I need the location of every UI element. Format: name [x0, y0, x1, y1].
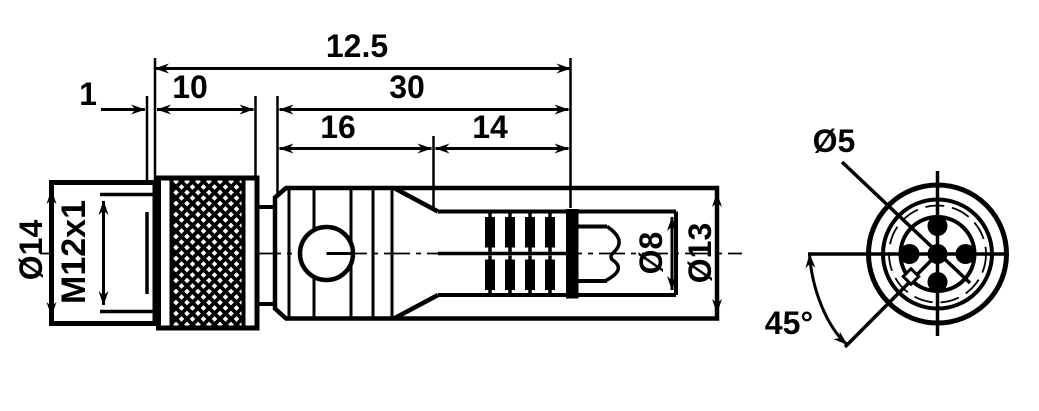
gland-ferrule — [566, 209, 579, 299]
dim-label-overall: 12.5 — [326, 28, 388, 64]
dim-label-knurl: 10 — [172, 69, 208, 105]
angle-45-arc — [810, 254, 848, 345]
dim-label-diameter-13: Ø13 — [682, 223, 718, 283]
dim-label-relief: 1 — [79, 76, 97, 112]
front-view: Ø5 45° — [765, 123, 1008, 347]
drawing-canvas: Ø14 M12x1 Ø8 Ø13 12.5 1 10 30 16 14 — [0, 0, 1039, 411]
dim-label-thread-m12x1: M12x1 — [55, 200, 93, 304]
dim-label-diameter-8: Ø8 — [633, 232, 669, 275]
side-view: Ø14 M12x1 Ø8 Ø13 12.5 1 10 30 16 14 — [13, 28, 742, 328]
dim-label-pin-angle: 45° — [765, 305, 813, 341]
m12-connector-drawing: Ø14 M12x1 Ø8 Ø13 12.5 1 10 30 16 14 — [0, 0, 1039, 411]
dim-label-rear-section: 14 — [472, 109, 508, 145]
dim-label-pin-circle: Ø5 — [813, 123, 856, 159]
dim-label-body: 30 — [389, 69, 425, 105]
dim-label-diameter-14: Ø14 — [13, 220, 49, 281]
knurl-hatch — [172, 181, 244, 326]
dim-label-front-section: 16 — [320, 109, 356, 145]
